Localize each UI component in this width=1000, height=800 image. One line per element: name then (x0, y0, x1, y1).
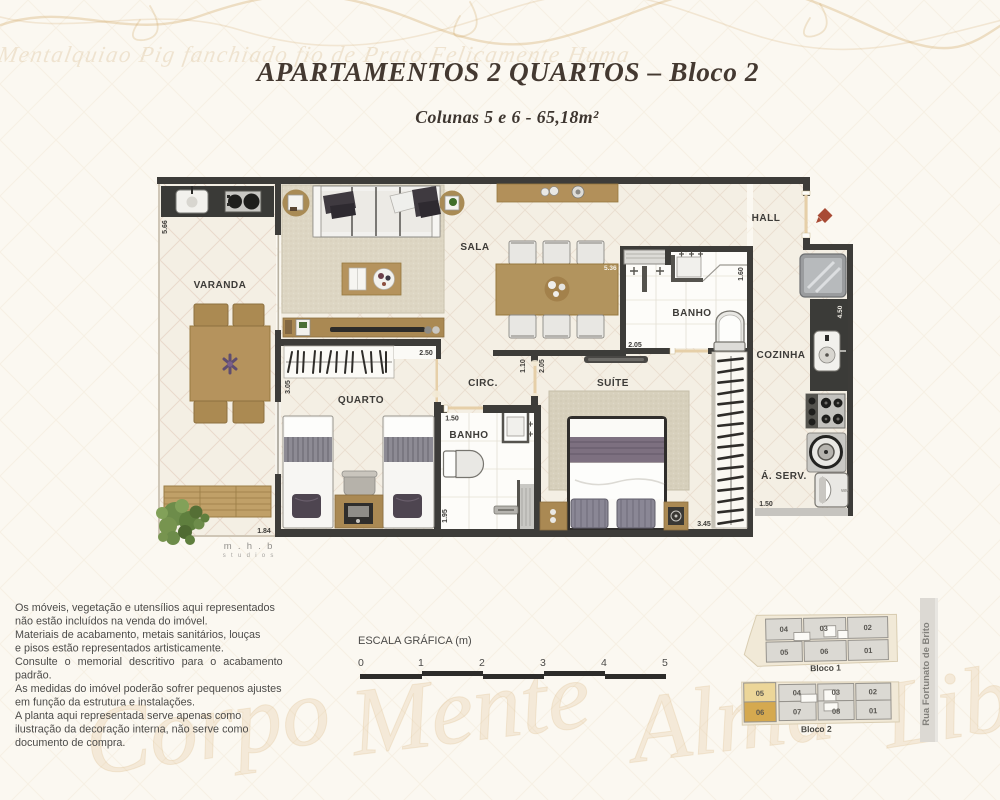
svg-text:QUARTO: QUARTO (338, 395, 384, 406)
svg-text:Bloco 1: Bloco 1 (810, 663, 841, 674)
svg-text:Á. SERV.: Á. SERV. (761, 469, 807, 482)
svg-text:padrão.: padrão. (15, 670, 52, 682)
svg-text:Rua Fortunato de Brito: Rua Fortunato de Brito (921, 622, 932, 726)
svg-text:s t u d i o s: s t u d i o s (223, 553, 275, 559)
svg-text:2.05: 2.05 (539, 359, 546, 373)
svg-text:0: 0 (358, 657, 364, 669)
svg-text:APARTAMENTOS 2 QUARTOS – Bloco: APARTAMENTOS 2 QUARTOS – Bloco 2 (255, 57, 759, 87)
svg-text:5: 5 (662, 657, 668, 669)
svg-text:BANHO: BANHO (672, 308, 711, 319)
svg-text:HALL: HALL (752, 213, 781, 224)
svg-text:1.60: 1.60 (738, 267, 745, 281)
svg-text:SALA: SALA (460, 242, 489, 253)
svg-text:5.36: 5.36 (604, 265, 617, 272)
svg-text:ESCALA GRÁFICA (m): ESCALA GRÁFICA (m) (358, 634, 472, 647)
svg-text:ilustração da decoração intern: ilustração da decoração interna, não ser… (15, 724, 248, 736)
svg-text:08: 08 (832, 707, 840, 716)
svg-text:WM: WM (841, 488, 849, 493)
svg-text:3.05: 3.05 (285, 380, 292, 394)
svg-text:3: 3 (540, 657, 546, 669)
svg-text:03: 03 (832, 688, 840, 697)
svg-text:Os móveis, vegetação e utensíl: Os móveis, vegetação e utensílios aqui r… (15, 602, 275, 614)
svg-text:04: 04 (793, 688, 802, 697)
svg-text:2: 2 (479, 657, 485, 669)
svg-text:4: 4 (601, 657, 607, 669)
svg-text:Consulte o memorial descritivo: Consulte o memorial descritivo para o ac… (15, 656, 283, 668)
svg-text:02: 02 (863, 623, 872, 632)
svg-text:COZINHA: COZINHA (756, 350, 805, 361)
svg-text:1: 1 (418, 657, 424, 669)
svg-text:02: 02 (869, 687, 877, 696)
svg-text:2.05: 2.05 (628, 342, 642, 349)
svg-text:4.50: 4.50 (837, 305, 844, 318)
svg-text:05: 05 (780, 648, 789, 657)
svg-text:2.50: 2.50 (419, 350, 433, 357)
svg-text:BANHO: BANHO (449, 430, 488, 441)
svg-text:não estão incluídos na venda d: não estão incluídos na venda do imóvel. (15, 616, 208, 628)
svg-text:05: 05 (756, 689, 764, 698)
svg-text:1.10: 1.10 (520, 359, 527, 373)
svg-text:1.50: 1.50 (445, 416, 459, 423)
svg-text:01: 01 (864, 646, 873, 655)
svg-text:A planta aqui representada ser: A planta aqui representada serve apenas … (15, 710, 241, 722)
svg-text:Colunas 5 e 6 - 65,18m²: Colunas 5 e 6 - 65,18m² (415, 107, 599, 127)
svg-text:06: 06 (756, 708, 764, 717)
svg-text:Bloco 2: Bloco 2 (801, 724, 832, 734)
svg-text:CIRC.: CIRC. (468, 378, 498, 389)
svg-text:e pisos estão representados ar: e pisos estão representados artisticamen… (15, 643, 224, 655)
svg-text:SUÍTE: SUÍTE (597, 376, 629, 389)
svg-text:As medidas do imóvel poderão s: As medidas do imóvel poderão sofrer pequ… (15, 683, 282, 695)
svg-text:m . h . b: m . h . b (224, 541, 275, 552)
svg-text:04: 04 (780, 625, 789, 634)
svg-text:5.66: 5.66 (162, 220, 169, 234)
svg-text:07: 07 (793, 707, 801, 716)
svg-text:06: 06 (820, 647, 829, 656)
svg-text:em função da estrutura e insta: em função da estrutura e instalações. (15, 697, 195, 709)
svg-text:1.50: 1.50 (759, 501, 773, 508)
svg-text:3.45: 3.45 (697, 521, 711, 528)
svg-text:documento de compra.: documento de compra. (15, 737, 125, 749)
svg-text:03: 03 (819, 624, 828, 633)
svg-text:Materiais de acabamento, metai: Materiais de acabamento, metais sanitári… (15, 629, 261, 641)
svg-text:1.95: 1.95 (442, 509, 449, 523)
svg-text:VARANDA: VARANDA (194, 280, 247, 291)
svg-text:01: 01 (869, 706, 877, 715)
svg-text:1.84: 1.84 (257, 528, 271, 535)
